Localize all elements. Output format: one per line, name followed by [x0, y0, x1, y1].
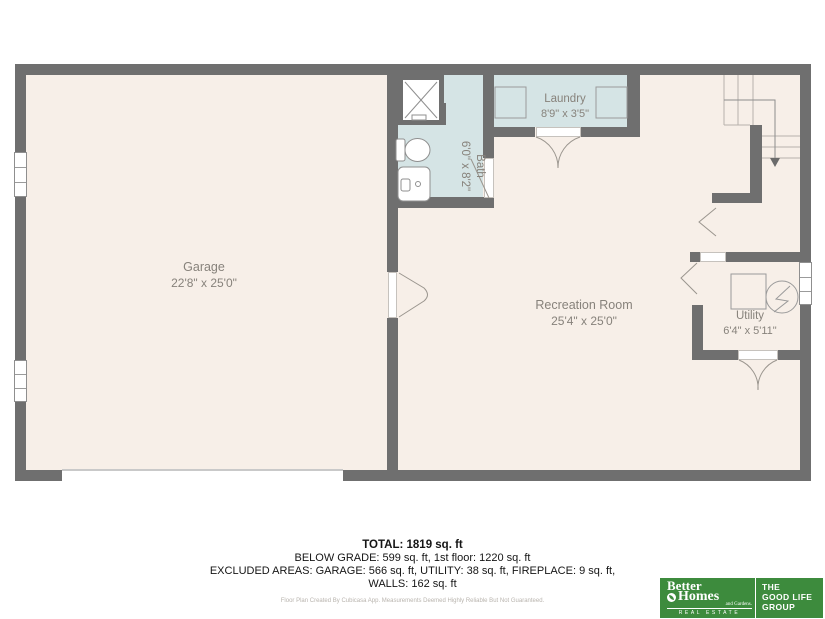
wall-garage-divider-upper: [387, 75, 398, 272]
excluded-area-text: EXCLUDED AREAS: GARAGE: 566 sq. ft, UTIL…: [0, 565, 825, 577]
brokerage-logo: Better Homes and Gardens. REAL ESTATE TH…: [660, 578, 823, 618]
wall-utility-top: [726, 252, 811, 262]
room-name: Garage: [119, 259, 289, 275]
wall-utility-top-stub: [690, 252, 700, 262]
wall-outer-top: [15, 64, 811, 75]
window-pane-line: [15, 374, 26, 375]
window-pane-line: [800, 277, 811, 278]
wall-laundry-bottom-left: [483, 127, 535, 137]
wall-stair-horizontal: [712, 193, 762, 203]
room-dims: 8'9" x 3'5": [510, 107, 620, 122]
better-homes-gardens-logo: Better Homes and Gardens. REAL ESTATE: [660, 578, 755, 618]
wall-utility-bottom-left: [692, 350, 738, 360]
total-area-text: TOTAL: 1819 sq. ft: [0, 539, 825, 551]
window-icon: [14, 152, 27, 197]
floorplan-page: Garage 22'8" x 25'0" Recreation Room 25'…: [0, 0, 825, 619]
brand-word-homes: Homes: [678, 591, 719, 603]
group-word-group: GROUP: [762, 602, 823, 612]
door-leaf-garage-rec: [388, 272, 397, 318]
room-dims: 22'8" x 25'0": [119, 275, 289, 291]
door-opening-laundry: [536, 127, 581, 137]
leaf-icon: [667, 593, 676, 602]
wall-utility-bottom-right: [778, 350, 811, 360]
window-pane-line: [15, 388, 26, 389]
room-label-garage: Garage 22'8" x 25'0": [119, 259, 289, 291]
door-opening-utility-top: [700, 252, 726, 262]
room-label-bath: Bath 6'0" x 8'2": [453, 116, 487, 216]
room-label-utility: Utility 6'4" x 5'11": [700, 309, 800, 339]
group-word-the: THE: [762, 582, 823, 592]
window-icon: [14, 360, 27, 402]
room-name: Recreation Room: [499, 297, 669, 313]
room-dims: 25'4" x 25'0": [499, 313, 669, 329]
window-pane-line: [15, 167, 26, 168]
window-pane-line: [800, 291, 811, 292]
room-label-recreation: Recreation Room 25'4" x 25'0": [499, 297, 669, 329]
room-name: Bath: [472, 116, 487, 216]
good-life-group-logo: THE GOOD LIFE GROUP: [755, 578, 823, 618]
window-icon: [799, 262, 812, 305]
shower-icon: [398, 75, 444, 125]
room-dims: 6'4" x 5'11": [700, 324, 800, 339]
door-opening-utility-bottom: [738, 350, 778, 360]
brand-real-estate: REAL ESTATE: [667, 608, 752, 616]
garage-door-icon: [62, 469, 343, 481]
room-dims: 6'0" x 8'2": [457, 116, 472, 216]
wall-outer-left: [15, 64, 26, 481]
wall-garage-divider-lower: [387, 318, 398, 470]
group-word-goodlife: GOOD LIFE: [762, 592, 823, 602]
room-name: Utility: [700, 309, 800, 324]
grade-area-text: BELOW GRADE: 599 sq. ft, 1st floor: 1220…: [0, 552, 825, 564]
wall-stair-vertical: [750, 125, 762, 203]
room-name: Laundry: [510, 92, 620, 107]
room-label-laundry: Laundry 8'9" x 3'5": [510, 92, 620, 122]
wall-laundry-right: [627, 75, 640, 137]
window-pane-line: [15, 182, 26, 183]
